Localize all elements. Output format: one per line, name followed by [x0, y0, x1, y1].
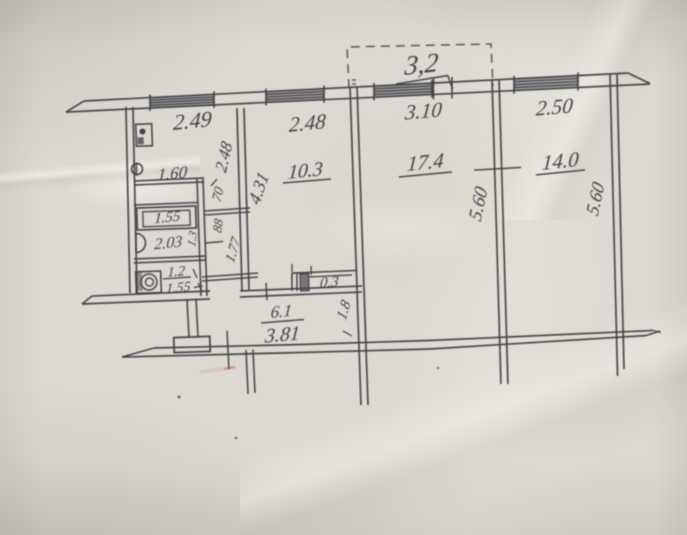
svg-text:1.55: 1.55 [166, 279, 191, 298]
svg-text:14.0: 14.0 [541, 147, 580, 175]
svg-text:1.2: 1.2 [167, 263, 186, 281]
svg-text:2.03: 2.03 [154, 233, 183, 253]
svg-text:1.55: 1.55 [154, 209, 182, 228]
svg-text:2.50: 2.50 [535, 93, 574, 120]
svg-text:3,2: 3,2 [403, 47, 440, 81]
svg-text:70: 70 [209, 185, 227, 205]
svg-text:2.48: 2.48 [212, 138, 236, 175]
svg-text:5.60: 5.60 [466, 183, 493, 224]
svg-text:1.8: 1.8 [335, 297, 355, 323]
svg-text:1.60: 1.60 [157, 162, 188, 184]
svg-text:2.49: 2.49 [173, 106, 213, 135]
svg-text:6.1: 6.1 [270, 301, 292, 322]
svg-text:1.3: 1.3 [184, 229, 200, 248]
svg-text:5.60: 5.60 [583, 178, 609, 218]
svg-text:17.4: 17.4 [406, 148, 445, 176]
svg-text:2.48: 2.48 [288, 109, 327, 137]
svg-text:4.31: 4.31 [245, 168, 273, 207]
svg-text:3.81: 3.81 [263, 322, 301, 347]
svg-text:3.10: 3.10 [403, 97, 443, 124]
svg-text:88: 88 [210, 216, 226, 234]
svg-text:0.3: 0.3 [319, 274, 340, 292]
svg-text:10.3: 10.3 [287, 158, 323, 184]
